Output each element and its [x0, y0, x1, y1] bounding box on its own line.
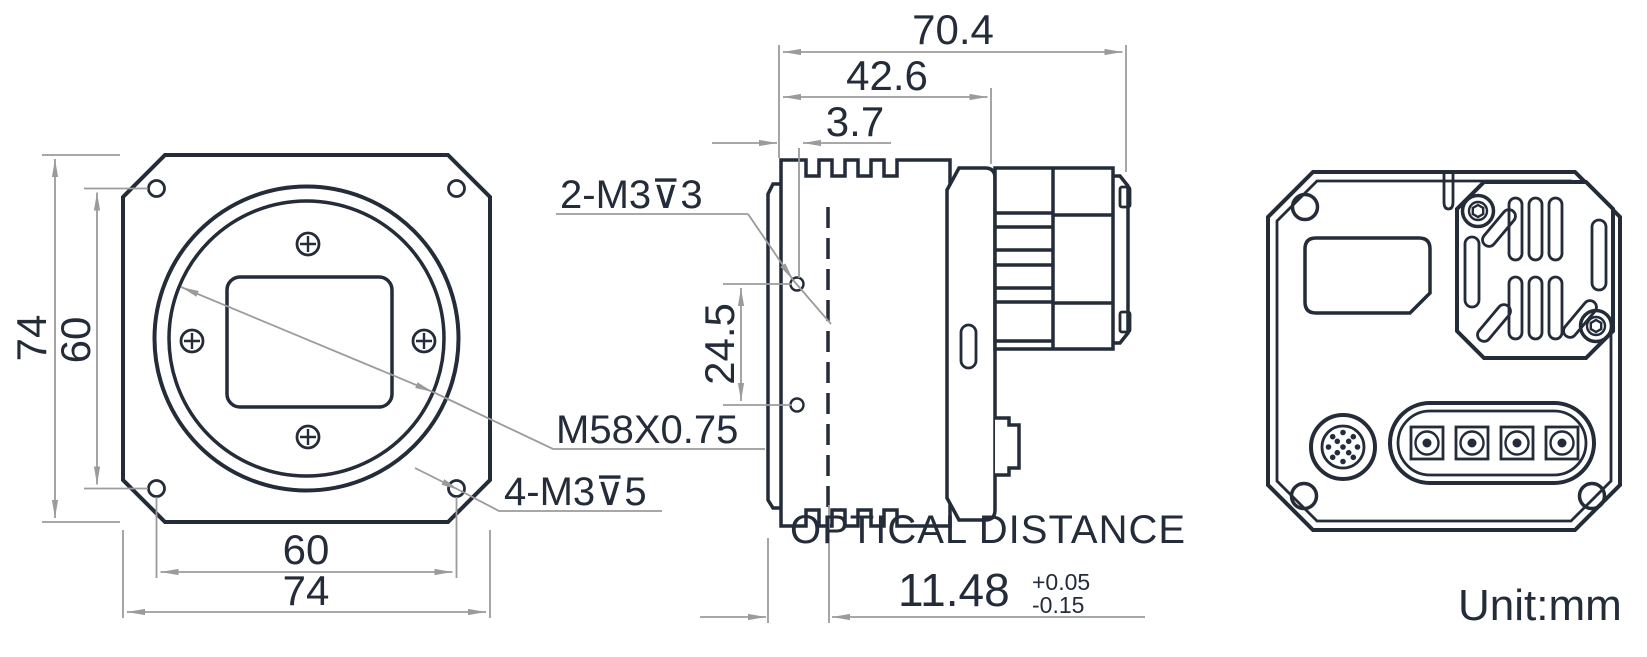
dim-text-60-vertical: 60 [52, 317, 99, 364]
aux-connector [995, 418, 1019, 475]
mount-screw [181, 330, 203, 352]
mount-screw [297, 233, 319, 255]
dim-text-60-horizontal: 60 [283, 526, 330, 573]
dim-overall-depth: 70.4 [779, 6, 1126, 172]
optical-tolerance-minus: -0.15 [1032, 592, 1084, 618]
side-view: 70.4 42.6 3.7 24.5 2-M3⊽3 [556, 6, 1186, 623]
unit-note: Unit:mm [1458, 581, 1622, 630]
dim-text-42.6: 42.6 [846, 52, 928, 99]
rear-connector-block [995, 168, 1130, 349]
dim-text-3.7: 3.7 [826, 98, 884, 145]
dim-body-depth: 42.6 [783, 52, 991, 164]
vent-panel [1457, 182, 1613, 358]
dim-text-70.4: 70.4 [912, 6, 994, 53]
front-view: 74 60 60 74 M58X0.75 [8, 155, 765, 618]
label-mount-thread: M58X0.75 [556, 408, 738, 452]
mount-screw [413, 330, 435, 352]
technical-drawing-canvas: 74 60 60 74 M58X0.75 [0, 0, 1647, 657]
mount-screw [297, 426, 319, 448]
camera-dimension-drawing: 74 60 60 74 M58X0.75 [0, 0, 1647, 657]
label-plate [1305, 238, 1430, 313]
rear-housing [947, 168, 995, 520]
label-corner-holes: 4-M3⊽5 [504, 470, 647, 514]
front-flange-lip [768, 184, 781, 508]
dim-text-24.5: 24.5 [696, 303, 743, 385]
dim-text-74-horizontal: 74 [283, 567, 330, 614]
dim-text-74-vertical: 74 [8, 315, 55, 362]
back-view [1268, 172, 1620, 530]
dim-optical-distance: OPTICAL DISTANCE 11.48 +0.05 -0.15 [700, 505, 1186, 623]
camera-body-profile [781, 160, 950, 526]
optical-distance-title: OPTICAL DISTANCE [790, 508, 1186, 552]
optical-distance-value: 11.48 [898, 564, 1010, 616]
label-side-holes: 2-M3⊽3 [560, 173, 703, 217]
dim-side-hole-spacing: 24.5 [696, 284, 792, 405]
